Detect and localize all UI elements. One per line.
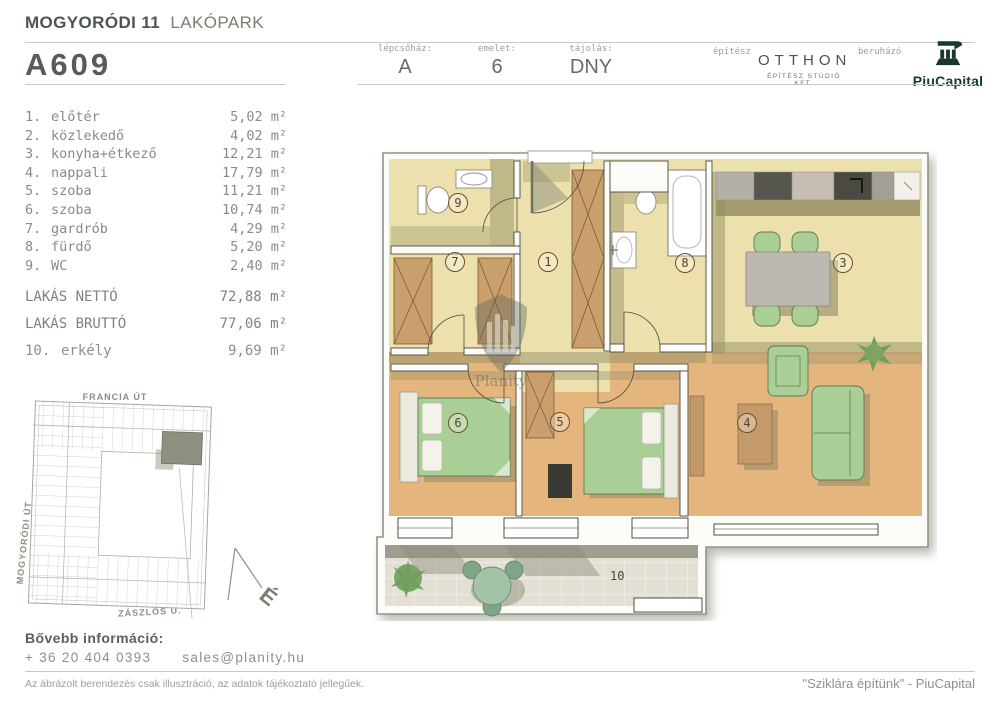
- room-num: 1.: [25, 108, 51, 127]
- room-num: 5.: [25, 182, 51, 201]
- planity-watermark: Planity: [475, 294, 528, 390]
- developer-label: beruházó: [858, 47, 901, 57]
- total-net-area: 72,88 m²: [220, 288, 287, 306]
- room-label-4: 4: [743, 416, 750, 430]
- bedroom6-furniture: [400, 392, 516, 482]
- footer-divider: [25, 671, 975, 672]
- room-name: gardrób: [51, 220, 230, 239]
- room-label-6: 6: [454, 416, 461, 430]
- field-floor-value: 6: [452, 56, 542, 79]
- armchair: [768, 346, 808, 396]
- unit-id: A609: [25, 47, 111, 83]
- balcony-row: 10. erkély 9,69 m²: [25, 342, 287, 360]
- toilet-bowl: [636, 190, 656, 214]
- header-fields-underline: [358, 84, 975, 85]
- building-outline: [26, 401, 211, 619]
- room-num: 3.: [25, 145, 51, 164]
- balcony-area: 9,69 m²: [228, 342, 287, 360]
- field-staircase-label: lépcsőház:: [360, 44, 450, 54]
- field-orientation-value: DNY: [546, 56, 636, 79]
- street-francia-ut: FRANCIA ÚT: [83, 391, 148, 402]
- piucapital-column-icon: [931, 40, 965, 67]
- architect-logo: OTTHON ÉPÍTÉSZ STÚDIÓ KFT.: [758, 52, 850, 87]
- phone-number: + 36 20 404 0393: [25, 650, 151, 665]
- field-orientation: tájolás: DNY: [546, 44, 636, 79]
- coffee-table: [738, 404, 772, 464]
- project-name: MOGYORÓDI 11: [25, 13, 160, 32]
- field-orientation-label: tájolás:: [546, 44, 636, 54]
- total-net: LAKÁS NETTÓ 72,88 m²: [25, 288, 287, 306]
- room-label-9: 9: [454, 196, 461, 210]
- room-num: 9.: [25, 257, 51, 276]
- room-label-10: 10: [610, 569, 624, 583]
- room-num: 2.: [25, 127, 51, 146]
- room-name: nappali: [51, 164, 222, 183]
- room-label-1: 1: [544, 255, 551, 269]
- project-name-light: LAKÓPARK: [170, 13, 264, 32]
- developer-logo: PiuCapital: [908, 40, 988, 89]
- hall-wardrobe: [572, 170, 604, 348]
- bed6-headboard: [400, 392, 418, 482]
- highlighted-unit: [161, 431, 202, 464]
- page-title: MOGYORÓDI 11 LAKÓPARK: [25, 13, 264, 33]
- kitchen-counter: [716, 172, 920, 216]
- room-list: 1.előtér5,02 m² 2.közlekedő4,02 m² 3.kon…: [25, 108, 287, 275]
- field-staircase: lépcsőház: A: [360, 44, 450, 79]
- room-row: 3.konyha+étkező12,21 m²: [25, 145, 287, 164]
- apartment-datasheet: MOGYORÓDI 11 LAKÓPARK A609 lépcsőház: A …: [0, 0, 1000, 707]
- sliding-door: [714, 524, 878, 535]
- total-gross: LAKÁS BRUTTÓ 77,06 m²: [25, 315, 287, 333]
- total-gross-label: LAKÁS BRUTTÓ: [25, 315, 220, 333]
- disclaimer-text: Az ábrázolt berendezés csak illusztráció…: [25, 678, 364, 690]
- room-label-7: 7: [451, 255, 458, 269]
- room-label-8: 8: [681, 256, 688, 270]
- room-name: szoba: [51, 182, 222, 201]
- more-info-title: Bővebb információ:: [25, 630, 164, 646]
- room-area: 4,02 m²: [230, 127, 287, 146]
- room-area: 12,21 m²: [222, 145, 287, 164]
- north-arrow: É: [228, 548, 282, 611]
- room-row: 7.gardrób4,29 m²: [25, 220, 287, 239]
- contact-line: + 36 20 404 0393 sales@planity.hu: [25, 650, 331, 665]
- room-row: 2.közlekedő4,02 m²: [25, 127, 287, 146]
- room-area: 17,79 m²: [222, 164, 287, 183]
- title-underline: [25, 84, 285, 85]
- architect-label: építész: [713, 47, 751, 57]
- room-area: 10,74 m²: [222, 201, 287, 220]
- room-area: 4,29 m²: [230, 220, 287, 239]
- email-address: sales@planity.hu: [182, 650, 305, 665]
- room-area: 5,02 m²: [230, 108, 287, 127]
- room-area: 2,40 m²: [230, 257, 287, 276]
- room-row: 1.előtér5,02 m²: [25, 108, 287, 127]
- room-num: 4.: [25, 164, 51, 183]
- room-row: 8.fürdő5,20 m²: [25, 238, 287, 257]
- field-floor-label: emelet:: [452, 44, 542, 54]
- room-label-5: 5: [556, 415, 563, 429]
- field-floor: emelet: 6: [452, 44, 542, 79]
- developer-name: PiuCapital: [908, 73, 988, 89]
- balcony: 10: [385, 545, 702, 616]
- room-row: 4.nappali17,79 m²: [25, 164, 287, 183]
- room-name: WC: [51, 257, 230, 276]
- room-num: 7.: [25, 220, 51, 239]
- field-staircase-value: A: [360, 56, 450, 79]
- room-area: 5,20 m²: [230, 238, 287, 257]
- company-quote: "Sziklára építünk" - PiuCapital: [802, 676, 975, 691]
- room-name: fürdő: [51, 238, 230, 257]
- total-gross-area: 77,06 m²: [220, 315, 287, 333]
- room-num: 6.: [25, 201, 51, 220]
- tv-cabinet: [548, 464, 572, 498]
- balcony-name: erkély: [61, 342, 228, 360]
- header-divider-top: [25, 42, 975, 43]
- room-label-3: 3: [839, 256, 846, 270]
- site-map: FRANCIA ÚT MOGYORÓDI ÚT ZÁSZLÓS U. É: [10, 388, 310, 623]
- room-row: 9.WC2,40 m²: [25, 257, 287, 276]
- room-name: konyha+étkező: [51, 145, 222, 164]
- architect-name: OTTHON: [758, 52, 850, 69]
- room-name: szoba: [51, 201, 222, 220]
- balcony-opening: [634, 598, 702, 612]
- floor-plan: 10: [372, 146, 937, 621]
- sideboard: [690, 396, 704, 476]
- room-name: előtér: [51, 108, 230, 127]
- total-net-label: LAKÁS NETTÓ: [25, 288, 220, 306]
- dining-table: [746, 252, 830, 306]
- room-num: 8.: [25, 238, 51, 257]
- north-label: É: [255, 582, 282, 611]
- room-area: 11,21 m²: [222, 182, 287, 201]
- room-name: közlekedő: [51, 127, 230, 146]
- room-row: 6.szoba10,74 m²: [25, 201, 287, 220]
- watermark-text: Planity: [475, 372, 528, 390]
- bed5-headboard: [664, 404, 678, 498]
- room-row: 5.szoba11,21 m²: [25, 182, 287, 201]
- balcony-num: 10.: [25, 342, 61, 360]
